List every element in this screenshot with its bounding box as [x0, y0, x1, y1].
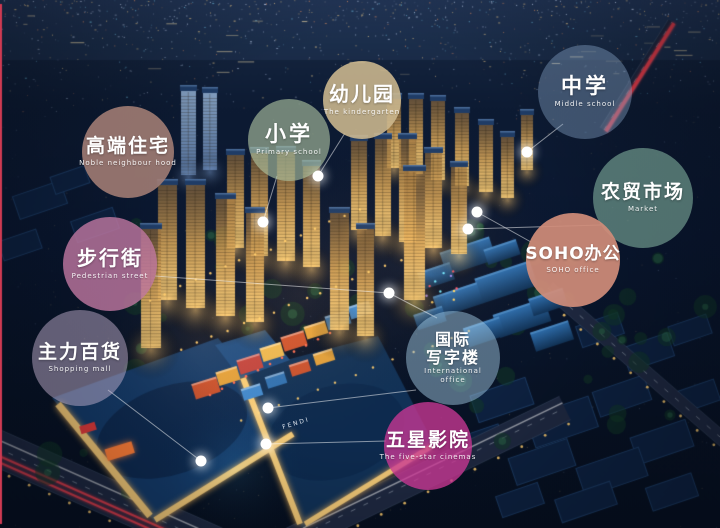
location-marker-m-intl-office-site [384, 288, 395, 299]
facility-name-zh: 幼儿园 [329, 83, 395, 105]
facility-name-en: office [440, 377, 465, 385]
facility-label-soho-office: SOHO办公SOHO office [526, 213, 620, 307]
location-marker-m-store-site [196, 456, 207, 467]
facility-name-zh: 主力百货 [38, 342, 122, 363]
facility-name-en: Noble neighbour hood [79, 160, 177, 168]
location-marker-m-middle-site [522, 147, 533, 158]
facility-name-en: Shopping mall [48, 366, 111, 374]
facility-name-zh: SOHO办公 [525, 245, 620, 264]
facility-label-kindergarten: 幼儿园The kindergarten [323, 61, 401, 139]
facility-label-department-store: 主力百货Shopping mall [32, 310, 128, 406]
facility-label-pedestrian-street: 步行街Pedestrian street [63, 217, 157, 311]
facility-name-zh: 写字楼 [426, 349, 480, 367]
facility-name-zh: 高端住宅 [86, 136, 170, 157]
facility-name-en: Middle school [555, 101, 616, 109]
facility-name-zh: 农贸市场 [601, 182, 685, 203]
facility-label-international-office: 国际写字楼Internationaloffice [406, 311, 500, 405]
facility-name-en: SOHO office [546, 267, 599, 275]
facility-name-en: The five-star cinemas [380, 454, 477, 462]
facility-name-en: Market [628, 206, 658, 214]
facility-name-en: International [424, 368, 482, 376]
facility-name-zh: 步行街 [77, 247, 143, 269]
facility-label-middle-school: 中学Middle school [538, 45, 632, 139]
facility-name-en: The kindergarten [324, 109, 400, 117]
facility-label-primary-school: 小学Primary school [248, 99, 330, 181]
facility-name-zh: 小学 [265, 123, 313, 147]
facility-label-noble-residence: 高端住宅Noble neighbour hood [82, 106, 174, 198]
location-marker-m-mall-site [263, 403, 274, 414]
scene: 高端住宅Noble neighbour hood小学Primary school… [0, 0, 720, 528]
location-marker-m-cinema-site [261, 439, 272, 450]
facility-name-en: Pedestrian street [72, 273, 149, 281]
location-marker-m-primary-site [258, 217, 269, 228]
facility-name-zh: 中学 [561, 75, 609, 99]
facility-name-en: Primary school [256, 149, 322, 157]
facility-label-five-star-cinema: 五星影院The five-star cinemas [384, 402, 472, 490]
location-marker-m-soho-site [472, 207, 483, 218]
location-marker-m-market-site [463, 224, 474, 235]
facility-name-zh: 五星影院 [386, 430, 470, 451]
facility-name-zh: 国际 [435, 331, 471, 349]
